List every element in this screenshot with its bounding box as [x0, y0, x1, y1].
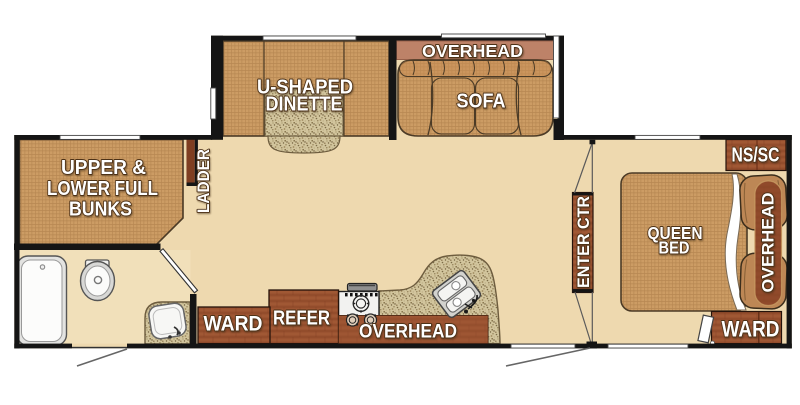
svg-text:REFER: REFER — [273, 308, 330, 330]
svg-text:BED: BED — [659, 238, 690, 258]
svg-text:SOFA: SOFA — [457, 91, 506, 113]
svg-text:LADDER: LADDER — [194, 149, 213, 213]
svg-text:BUNKS: BUNKS — [69, 199, 132, 221]
svg-text:ENTER CTR: ENTER CTR — [574, 196, 593, 288]
svg-text:OVERHEAD: OVERHEAD — [760, 192, 778, 292]
svg-text:WARD: WARD — [722, 317, 780, 342]
svg-text:DINETTE: DINETTE — [266, 94, 343, 116]
svg-text:NS/SC: NS/SC — [732, 145, 780, 167]
svg-text:OVERHEAD: OVERHEAD — [422, 41, 523, 61]
svg-text:OVERHEAD: OVERHEAD — [359, 322, 457, 343]
svg-text:WARD: WARD — [204, 312, 263, 336]
svg-text:UPPER &: UPPER & — [61, 157, 146, 179]
svg-text:LOWER FULL: LOWER FULL — [47, 178, 158, 200]
